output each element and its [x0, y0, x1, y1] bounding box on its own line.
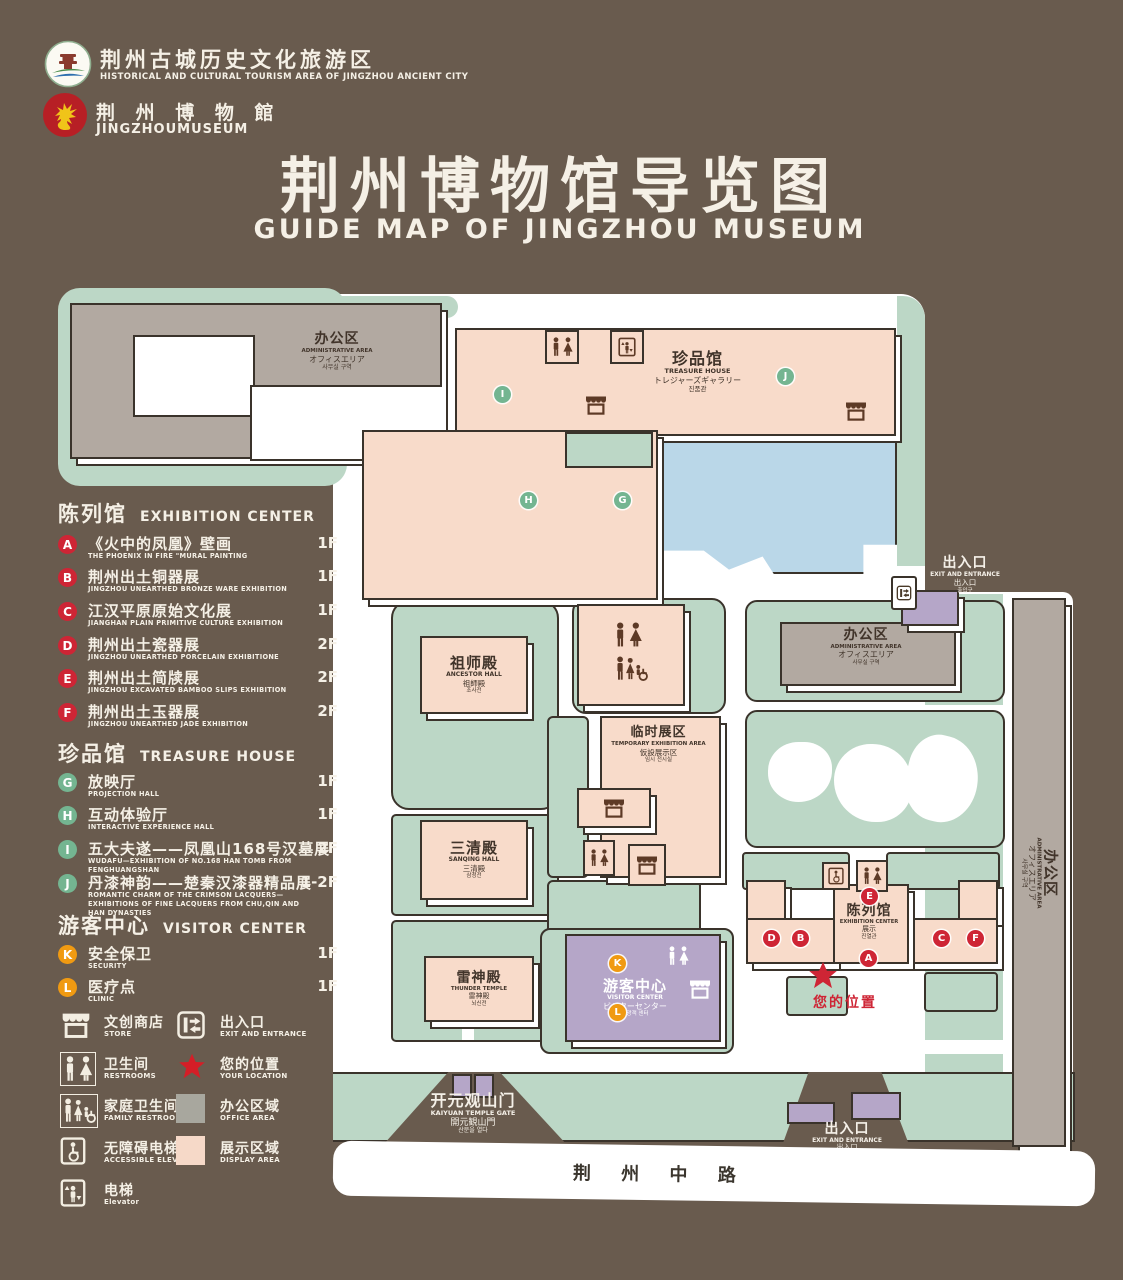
- location-star-icon: [178, 1052, 206, 1080]
- floor-badge: 1F: [317, 805, 338, 823]
- map-marker-A[interactable]: A: [860, 950, 877, 967]
- label-admin-northwest: 办公区 ADMINISTRATIVE AREA オフィスエリア 사무실 구역: [287, 332, 387, 372]
- floor-badge: 2F: [317, 635, 338, 653]
- map-marker-L[interactable]: L: [609, 1004, 626, 1021]
- restrooms-plate[interactable]: [856, 860, 888, 892]
- label-exit-east: 出入口 EXIT AND ENTRANCE 出入口 출입구: [922, 556, 1008, 594]
- lawn-right-strip: [897, 296, 925, 566]
- exit-entrance-icon: [896, 585, 912, 601]
- marker-badge: J: [58, 874, 77, 893]
- legend-symbol-store: 文创商店 STORE: [60, 1010, 92, 1040]
- map-marker-J[interactable]: J: [777, 368, 794, 385]
- legend-section-treasure: 珍品馆 TREASURE HOUSE: [58, 738, 296, 768]
- marker-badge: L: [58, 978, 77, 997]
- legend-symbol-exit: 出入口 EXIT AND ENTRANCE: [176, 1010, 206, 1040]
- accessible-elevator-icon: [828, 867, 844, 885]
- legend-section-exhibition: 陈列馆 EXHIBITION CENTER: [58, 498, 315, 528]
- lawn-exhibition-se: [924, 972, 998, 1012]
- map-marker-C[interactable]: C: [933, 930, 950, 947]
- museum-logo-title: 荆 州 博 物 館: [96, 98, 280, 125]
- treasure-deck: [565, 432, 653, 468]
- marker-badge: B: [58, 568, 77, 587]
- legend-item-I[interactable]: I 五大夫遂——凤凰山168号汉墓展 WUDAFU—EXHIBITION OF …: [58, 839, 310, 871]
- path-gap: [925, 1040, 1005, 1054]
- legend-item-L[interactable]: L 医疗点 CLINIC 1F: [58, 977, 310, 1009]
- legend-symbol-restrooms: 卫生间 RESTROOMS: [60, 1052, 96, 1086]
- legend-item-E[interactable]: E 荆州出土简牍展 JINGZHOU EXCAVATED BAMBOO SLIP…: [58, 668, 310, 700]
- marker-badge: C: [58, 602, 77, 621]
- sign-ancestor-hall: 祖师殿 ANCESTOR HALL 祖師殿 조사전: [420, 636, 528, 714]
- elevator-icon: [618, 337, 636, 357]
- marker-badge: I: [58, 840, 77, 859]
- restrooms-icon[interactable]: [612, 622, 644, 648]
- map-marker-I[interactable]: I: [494, 386, 511, 403]
- floor-badge: 2F: [317, 702, 338, 720]
- map-marker-H[interactable]: H: [520, 492, 537, 509]
- label-treasure-house: 珍品馆 TREASURE HOUSE トレジャーズギャラリー 진품관: [640, 350, 755, 393]
- tourism-area-logo-title: 荆州古城历史文化旅游区: [100, 44, 375, 74]
- family-restroom-icon: [60, 1094, 98, 1128]
- accessible-elevator-icon: [60, 1136, 86, 1166]
- sign-thunder-temple: 雷神殿 THUNDER TEMPLE 雷神殿 뇌신전: [424, 956, 534, 1022]
- floor-badge: 2F: [317, 668, 338, 686]
- your-location-star-icon: [808, 960, 838, 990]
- restrooms-plate[interactable]: [583, 840, 615, 876]
- exit-structure: [851, 1092, 901, 1120]
- floor-badge: 1F: [317, 601, 338, 619]
- store-icon[interactable]: [844, 399, 868, 423]
- sign-sanqing-hall: 三清殿 SANQING HALL 三清殿 삼청전: [420, 820, 528, 900]
- road-label: 荆 州 中 路: [573, 1159, 748, 1187]
- marker-badge: D: [58, 636, 77, 655]
- restrooms-icon: [60, 1052, 96, 1086]
- legend-item-C[interactable]: C 江汉平原原始文化展 JIANGHAN PLAIN PRIMITIVE CUL…: [58, 601, 310, 633]
- restrooms-icon: [861, 867, 883, 885]
- label-kaiyuan-gate: 开元观山门 KAIYUAN TEMPLE GATE 開元観山門 산문을 열다: [393, 1092, 553, 1135]
- building-admin-east-strip: 办公区 ADMINISTRATIVE AREA オフィスエリア 사무실 구역: [1012, 598, 1066, 1147]
- legend-section-title-en: TREASURE HOUSE: [140, 749, 296, 765]
- legend-item-K[interactable]: K 安全保卫 SECURITY 1F: [58, 944, 310, 976]
- legend-symbol-location: 您的位置 YOUR LOCATION: [176, 1052, 206, 1080]
- floor-badge: 1-2F: [301, 873, 338, 891]
- legend-item-G[interactable]: G 放映厅 PROJECTION HALL 1F: [58, 772, 310, 804]
- legend-item-A[interactable]: A 《火中的凤凰》壁画 THE PHOENIX IN FIRE "MURAL P…: [58, 534, 310, 566]
- legend-symbol-elevator: 电梯 Elevator: [60, 1178, 86, 1208]
- legend-symbol-family-restroom: 家庭卫生间 FAMILY RESTROOMS: [60, 1094, 98, 1128]
- museum-logo: [42, 92, 88, 138]
- store-annex: [577, 788, 651, 828]
- label-admin-east: 办公区 ADMINISTRATIVE AREA オフィスエリア 사무실 구역: [1020, 743, 1059, 1003]
- courtyard: [133, 335, 255, 417]
- label-your-location: 您的位置: [790, 992, 900, 1012]
- store-plate[interactable]: [628, 844, 666, 886]
- map-marker-K[interactable]: K: [609, 955, 626, 972]
- museum-logo-subtitle: JINGZHOUMUSEUM: [96, 122, 248, 137]
- building-restroom-annex: [577, 604, 685, 706]
- road-jingzhou-middle: 荆 州 中 路: [333, 1141, 1096, 1207]
- elevator-icon: [60, 1178, 86, 1208]
- restrooms-plate[interactable]: [545, 330, 579, 364]
- tourism-area-logo-subtitle: HISTORICAL AND CULTURAL TOURISM AREA OF …: [100, 72, 468, 82]
- map-marker-E[interactable]: E: [861, 888, 878, 905]
- display-area-swatch: [176, 1136, 205, 1165]
- accessible-elevator-plate[interactable]: [822, 862, 850, 890]
- legend-section-visitor: 游客中心 VISITOR CENTER: [58, 910, 307, 940]
- page-title: 荆州博物馆导览图: [140, 138, 980, 225]
- museum-logo-icon: [42, 92, 88, 138]
- family-restroom-icon[interactable]: [614, 656, 648, 682]
- marker-badge: A: [58, 535, 77, 554]
- legend-section-title-zh: 珍品馆: [58, 738, 127, 768]
- label-visitor-center: 游客中心 VISITOR CENTER ビジターセンター 관광객 센터: [580, 978, 690, 1018]
- tourism-area-logo: [44, 40, 92, 88]
- floor-badge: 2F: [317, 839, 338, 857]
- page-subtitle: GUIDE MAP OF JINGZHOU MUSEUM: [140, 214, 980, 245]
- legend-item-D[interactable]: D 荆州出土瓷器展 JINGZHOU UNEARTHED PORCELAIN E…: [58, 635, 310, 667]
- floor-badge: 1F: [317, 772, 338, 790]
- marker-badge: G: [58, 773, 77, 792]
- store-icon: [602, 797, 626, 819]
- lawn-bottom-right: [492, 1072, 1075, 1142]
- legend-section-title-en: VISITOR CENTER: [163, 921, 307, 937]
- legend-item-H[interactable]: H 互动体验厅 INTERACTIVE EXPERIENCE HALL 1F: [58, 805, 310, 837]
- floor-badge: 1F: [317, 567, 338, 585]
- legend-symbol-accessible-elevator: 无障碍电梯 ACCESSIBLE ELEVATOR: [60, 1136, 86, 1166]
- tourism-area-logo-icon: [44, 40, 92, 88]
- restrooms-icon: [588, 849, 610, 867]
- label-admin-mid: 办公区 ADMINISTRATIVE AREA オフィスエリア 사무실 구역: [780, 628, 952, 666]
- store-icon: [635, 854, 659, 876]
- office-area-swatch: [176, 1094, 205, 1123]
- map-marker-B[interactable]: B: [792, 930, 809, 947]
- map-marker-D[interactable]: D: [763, 930, 780, 947]
- restrooms-icon[interactable]: [666, 946, 690, 966]
- exit-entrance-plate[interactable]: [891, 576, 917, 610]
- legend-symbol-display-area: 展示区域 DISPLAY AREA: [176, 1136, 205, 1165]
- label-exhibition-center: 陈列馆 EXHIBITION CENTER 展示 진열관: [833, 904, 905, 940]
- label-temporary-exhibition: 临时展区 TEMPORARY EXHIBITION AREA 仮設展示区 임시 …: [602, 726, 715, 763]
- map-marker-G[interactable]: G: [614, 492, 631, 509]
- marker-badge: K: [58, 945, 77, 964]
- marker-badge: F: [58, 703, 77, 722]
- legend-section-title-zh: 陈列馆: [58, 498, 127, 528]
- legend-item-F[interactable]: F 荆州出土玉器展 JINGZHOU UNEARTHED JADE EXHIBI…: [58, 702, 310, 734]
- legend-item-B[interactable]: B 荆州出土铜器展 JINGZHOU UNEARTHED BRONZE WARE…: [58, 567, 310, 599]
- store-icon: [60, 1010, 92, 1040]
- floor-badge: 1F: [317, 944, 338, 962]
- store-icon[interactable]: [688, 978, 712, 1000]
- restrooms-icon: [550, 337, 574, 357]
- map-marker-F[interactable]: F: [967, 930, 984, 947]
- marker-badge: E: [58, 669, 77, 688]
- elevator-plate[interactable]: [610, 330, 644, 364]
- store-icon[interactable]: [584, 393, 608, 417]
- marker-badge: H: [58, 806, 77, 825]
- floor-badge: 1F: [317, 534, 338, 552]
- legend-section-title-zh: 游客中心: [58, 910, 150, 940]
- exit-entrance-icon: [176, 1010, 206, 1040]
- legend-symbol-office-area: 办公区域 OFFICE AREA: [176, 1094, 205, 1123]
- floor-badge: 1F: [317, 977, 338, 995]
- legend-section-title-en: EXHIBITION CENTER: [140, 509, 315, 525]
